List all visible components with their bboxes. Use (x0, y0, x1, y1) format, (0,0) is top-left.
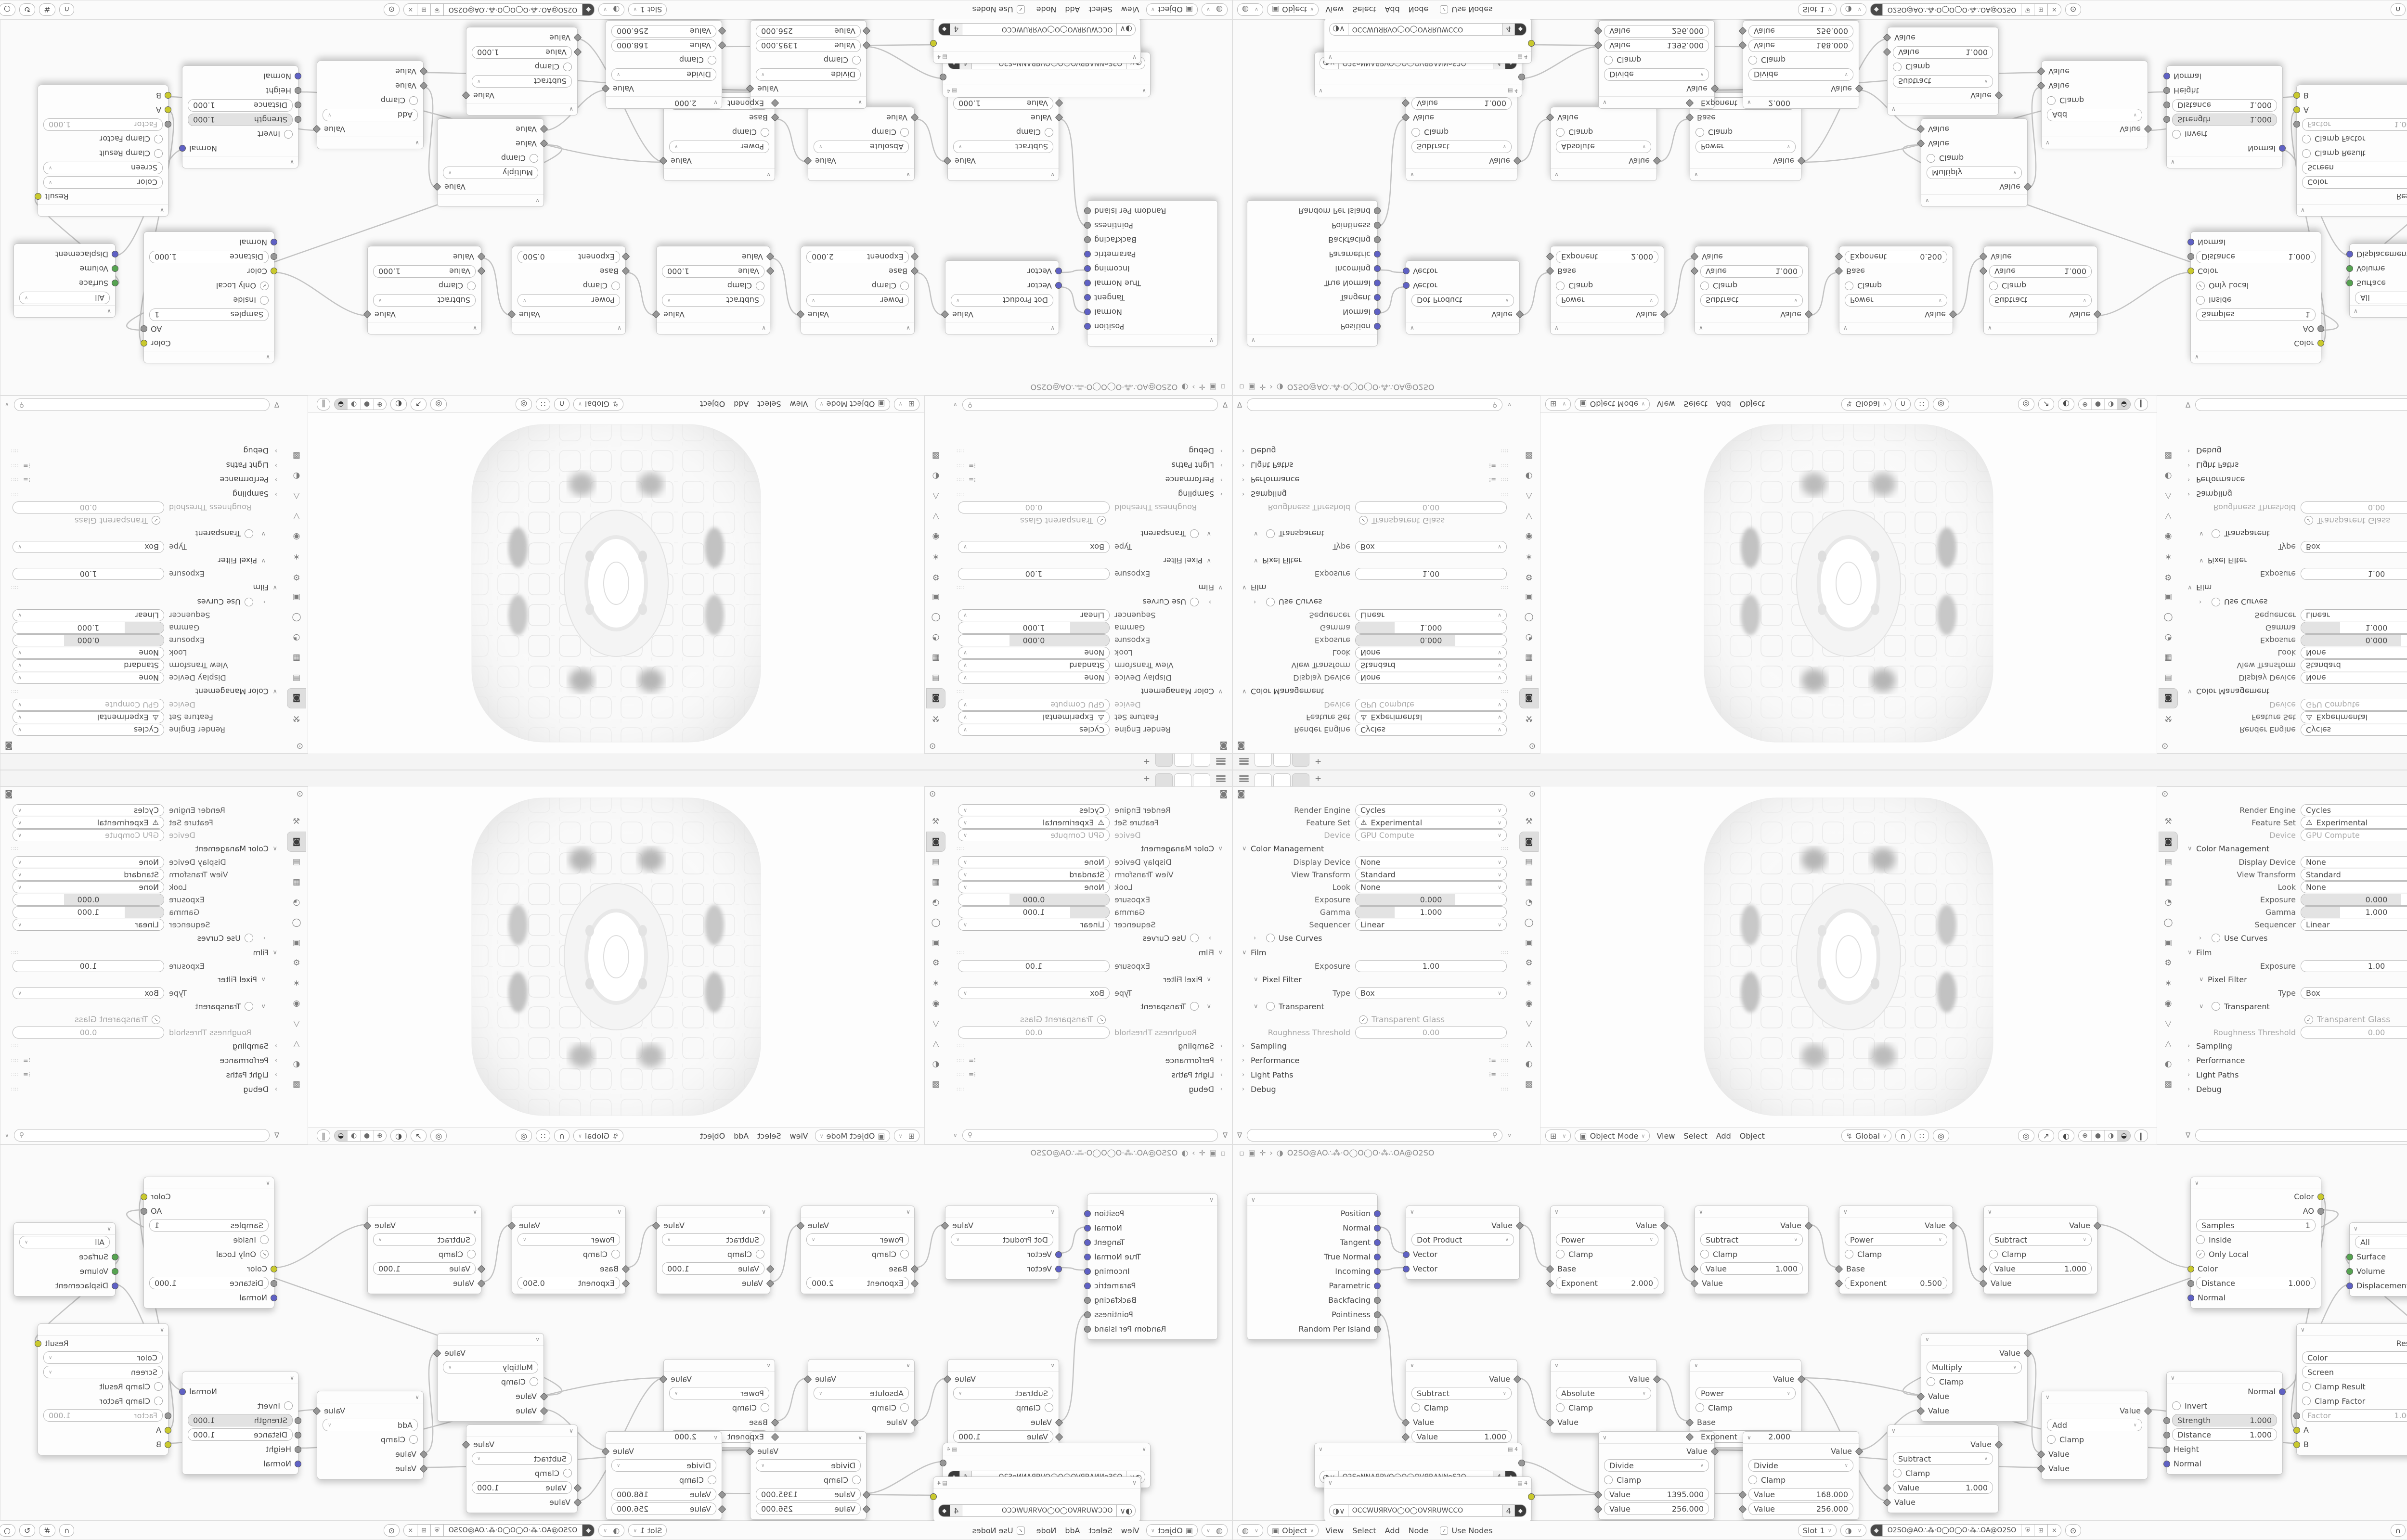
snap-icon-2[interactable]: ◎ (1933, 1129, 1949, 1142)
node-enum[interactable]: Divide∨ (756, 1459, 861, 1472)
mode-dropdown[interactable]: ▣Object Mode∨ (1575, 398, 1650, 411)
dropdown-display-device[interactable]: None∨ (13, 856, 164, 868)
shader-node-geometry[interactable]: ∨PositionNormalTangentTrue NormalIncomin… (1247, 200, 1378, 346)
value-exposure[interactable]: 0.000 (958, 635, 1110, 647)
dropdown-type[interactable]: Box∨ (958, 987, 1110, 999)
value-gamma[interactable]: 1.000 (13, 622, 164, 634)
shader-node-bump[interactable]: ∨NormalInvertStrength1.000Distance1.000H… (182, 1372, 298, 1475)
unlink-button[interactable]: × (2048, 3, 2061, 16)
socket[interactable] (2346, 1268, 2353, 1275)
collapse-chevron-icon[interactable]: ∨ (1603, 99, 1607, 106)
node-enum[interactable]: Screen∨ (43, 1366, 163, 1378)
section-header-sampling[interactable]: ›Sampling∷∷ (5, 1039, 282, 1053)
node-header[interactable]: ∨ (1087, 334, 1217, 346)
collapse-chevron-icon[interactable]: ∨ (1699, 1208, 1703, 1215)
collapse-chevron-icon[interactable]: ∨ (1251, 337, 1255, 344)
node-header[interactable]: ∨ (1984, 1206, 2097, 1218)
node-checkbox[interactable]: Clamp Factor (100, 1397, 168, 1406)
shader-node-math-subtract[interactable]: ∨ValueSubtract∨ClampValue1.000Value (466, 27, 578, 115)
value-exposure[interactable]: 0.000 (2301, 894, 2407, 906)
dropdown-sequencer[interactable]: Linear∨ (1355, 610, 1507, 622)
socket[interactable] (2317, 325, 2324, 332)
node-checkbox[interactable]: Clamp (1551, 128, 1593, 137)
socket[interactable] (295, 73, 301, 79)
node-field[interactable]: Exponent0.500 (518, 251, 620, 263)
node-header[interactable]: ∨ (945, 1206, 1059, 1218)
section-header-transparent[interactable]: ∨Transparent (1237, 999, 1514, 1014)
collapse-chevron-icon[interactable]: ∨ (858, 1434, 862, 1441)
node-header[interactable]: ∨ (1406, 1206, 1519, 1218)
node-field[interactable]: Value168.000 (611, 1488, 716, 1501)
tab-texture[interactable]: ▩ (2159, 1074, 2178, 1094)
dropdown-type[interactable]: Box∨ (2301, 987, 2407, 999)
node-field[interactable]: Value256.000 (611, 1502, 716, 1515)
section-checkbox[interactable] (1266, 529, 1275, 538)
socket[interactable] (1374, 1297, 1381, 1304)
editor-type-button[interactable]: ⊞∨ (894, 1129, 919, 1142)
editor-icon-2[interactable]: ↻ (19, 3, 35, 16)
section-header-light-paths[interactable]: ›Light Paths⁝≡∷∷ (5, 1067, 282, 1082)
shader-node-math-absolute[interactable]: ∨ValueAbsolute∨ClampValue (1550, 1359, 1657, 1433)
shader-node-ambient-occlusion[interactable]: ∨ColorAOSamples1Inside✓Only LocalColorDi… (2190, 1177, 2321, 1309)
menu-add[interactable]: Add (1716, 400, 1731, 409)
collapse-chevron-icon[interactable]: ∨ (1554, 1362, 1559, 1369)
collapse-chevron-icon[interactable]: ∨ (617, 1208, 621, 1215)
section-header-transparent[interactable]: ∨Transparent (2183, 999, 2407, 1014)
node-field[interactable]: Strength1.000 (2172, 1414, 2277, 1426)
node-checkbox[interactable]: Clamp (535, 1469, 577, 1478)
node-header[interactable]: ∨ (2350, 1223, 2407, 1235)
section-header-sampling[interactable]: ›Sampling∷∷ (950, 487, 1228, 501)
node-header[interactable]: ∨ (1247, 334, 1377, 346)
node-enum[interactable]: Absolute∨ (1556, 141, 1651, 153)
preset-menu-icon[interactable]: ⁝≡ (1489, 1071, 1496, 1078)
tab-object[interactable]: ▣ (2159, 587, 2178, 607)
node-header[interactable]: ∨ (1921, 194, 2027, 206)
shader-node-math-power[interactable]: ∨ValuePower∨ClampBaseExponent0.500 (1839, 1206, 1953, 1294)
overlay-icon-0[interactable]: ◎ (430, 398, 447, 411)
shader-node-bump[interactable]: ∨NormalInvertStrength1.000Distance1.000H… (2166, 65, 2283, 168)
workspace-tab[interactable] (1273, 773, 1291, 786)
section-header-sampling[interactable]: ›Sampling∷∷ (1237, 1039, 1514, 1053)
node-enum[interactable]: Subtract∨ (1700, 1233, 1803, 1246)
collapse-chevron-icon[interactable]: ∨ (1209, 1196, 1214, 1203)
tab-output[interactable]: ▤ (926, 852, 945, 872)
tab-physics[interactable]: ◉ (287, 526, 306, 547)
socket[interactable] (112, 251, 118, 257)
socket[interactable] (1084, 1268, 1091, 1275)
node-header[interactable]: ∨ (2191, 351, 2321, 363)
shading-solid-icon[interactable]: ● (360, 399, 373, 410)
socket[interactable] (1084, 265, 1091, 272)
socket[interactable] (2163, 102, 2170, 108)
collapse-chevron-icon[interactable]: ∨ (1319, 1446, 1323, 1452)
node-checkbox[interactable]: Clamp (824, 56, 866, 65)
shader-node-material-output[interactable]: ∨All∨SurfaceVolumeDisplacement (2349, 244, 2407, 318)
collapse-chevron-icon[interactable]: ∨ (1699, 325, 1703, 332)
collapse-chevron-icon[interactable]: ∨ (1410, 325, 1414, 332)
socket[interactable] (1374, 1268, 1381, 1275)
dropdown-render-engine[interactable]: Cycles∨ (13, 724, 164, 736)
dropdown-device[interactable]: GPU Compute∨ (2301, 829, 2407, 841)
mode-dropdown[interactable]: ▣Object Mode∨ (815, 1129, 890, 1142)
tab-modifiers[interactable]: ⚙ (1519, 567, 1539, 587)
tab-constraints[interactable]: ▽ (926, 1014, 945, 1034)
node-field[interactable]: Exponent2.000 (669, 1430, 769, 1443)
node-header[interactable]: ∨ (808, 168, 914, 180)
use-curves-row[interactable]: ›Use Curves (5, 931, 282, 945)
node-header[interactable]: ∨ (38, 1324, 168, 1336)
dropdown-render-engine[interactable]: Cycles∨ (2301, 804, 2407, 816)
collapse-chevron-icon[interactable]: ∨ (1554, 171, 1559, 178)
node-checkbox[interactable]: Clamp (1406, 1403, 1449, 1412)
shader-node-math-divide[interactable]: ∨ValueDivide∨ClampValue1395.000Value256.… (1598, 20, 1715, 109)
node-enum[interactable]: Divide∨ (611, 1459, 716, 1472)
use-curves-row[interactable]: ›Use Curves (2183, 595, 2407, 609)
tab-object[interactable]: ▣ (2159, 933, 2178, 953)
shader-node-bump[interactable]: ∨NormalInvertStrength1.000Distance1.000H… (182, 65, 298, 168)
use-curves-row[interactable]: ›Use Curves (2183, 931, 2407, 945)
tab-scene[interactable]: ◔ (287, 628, 306, 648)
preset-menu-icon[interactable]: ⁝≡ (969, 462, 976, 469)
tab-render[interactable]: ◙ (2159, 688, 2178, 708)
collapse-chevron-icon[interactable]: ∨ (1554, 1208, 1559, 1215)
socket[interactable] (1374, 222, 1381, 229)
snap-icon-2[interactable]: ◎ (516, 1129, 532, 1142)
node-field[interactable]: Factor1.000 (43, 118, 163, 131)
socket[interactable] (1374, 251, 1381, 257)
shader-node-math-subtract[interactable]: ∨ValueSubtract∨ClampValue1.000Value (1887, 27, 1999, 115)
workspace-tab[interactable] (1292, 773, 1309, 786)
shader-node-math-power[interactable]: ∨ValuePower∨ClampBaseExponent2.000 (801, 246, 915, 334)
shader-node-math-multiply[interactable]: ∨ValueMultiply∨ClampValueValue (437, 118, 544, 207)
shading-rendered-icon[interactable]: ◒ (335, 399, 347, 410)
collapse-chevron-icon[interactable]: ∨ (266, 354, 270, 360)
tab-object-data[interactable]: △ (287, 486, 306, 506)
section-header-debug[interactable]: ›Debug∷∷ (1237, 1082, 1514, 1096)
collapse-chevron-icon[interactable]: ∨ (762, 1208, 766, 1215)
shading-material-icon[interactable]: ◑ (347, 1130, 360, 1141)
collapse-chevron-icon[interactable]: ∨ (473, 325, 477, 332)
tab-physics[interactable]: ◉ (1519, 993, 1539, 1014)
app-menu-icon[interactable] (1216, 775, 1226, 782)
node-header[interactable]: ∨ (466, 103, 577, 115)
collapse-chevron-icon[interactable]: ∨ (1050, 171, 1055, 178)
dropdown-type[interactable]: Box∨ (13, 987, 164, 999)
preset-menu-icon[interactable]: ⁝≡ (23, 1071, 30, 1078)
shader-node-math-power[interactable]: ∨ValuePower∨ClampBaseExponent2.000 (1690, 92, 1801, 181)
section-header-film[interactable]: ∨Film∷∷ (2183, 945, 2407, 960)
socket[interactable] (165, 1427, 171, 1434)
transform-orientation-dropdown[interactable]: ↯Global∨ (573, 1129, 624, 1142)
node-header[interactable]: ∨ (2042, 137, 2148, 149)
socket[interactable] (1374, 1239, 1381, 1246)
node-checkbox[interactable]: Clamp (439, 1250, 481, 1259)
node-field[interactable]: Value256.000 (756, 25, 861, 38)
menu-add[interactable]: Add (1716, 1131, 1731, 1141)
menu-add[interactable]: Add (1065, 5, 1080, 14)
tab-object-data[interactable]: △ (1519, 486, 1539, 506)
collapse-chevron-icon[interactable]: ∨ (1988, 325, 1992, 332)
socket[interactable] (35, 193, 41, 200)
pause-render-button[interactable]: ∥ (2135, 398, 2148, 411)
node-field[interactable]: Factor1.000 (2302, 118, 2407, 131)
tab-texture[interactable]: ▩ (287, 446, 306, 466)
snap-icon-0[interactable]: ∩ (554, 1129, 569, 1142)
editor-icon-0[interactable]: ∩ (2391, 1524, 2406, 1537)
tab-tool[interactable]: ⚒ (287, 811, 306, 832)
dropdown-display-device[interactable]: None∨ (2301, 672, 2407, 684)
node-checkbox[interactable]: Clamp (1743, 1476, 1786, 1485)
tab-object[interactable]: ▣ (926, 933, 945, 953)
node-enum[interactable]: Screen∨ (2302, 1366, 2407, 1378)
socket[interactable] (1055, 1266, 1062, 1272)
node-checkbox[interactable]: ✓Only Local (216, 282, 274, 291)
socket[interactable] (141, 340, 147, 346)
collapse-chevron-icon[interactable]: ∨ (2195, 354, 2199, 360)
dropdown-sequencer[interactable]: Linear∨ (958, 610, 1110, 622)
tab-tool[interactable]: ⚒ (287, 708, 306, 729)
socket[interactable] (1055, 268, 1062, 274)
node-enum[interactable]: Power∨ (669, 141, 769, 153)
collapse-chevron-icon[interactable]: ∨ (2301, 1326, 2305, 1333)
section-header-film[interactable]: ∨Film∷∷ (1237, 580, 1514, 595)
socket[interactable] (2163, 73, 2170, 79)
menu-view[interactable]: View (1325, 1526, 1344, 1535)
node-header[interactable]: ∨ (801, 1206, 914, 1218)
node-field[interactable]: Distance1.000 (2196, 251, 2316, 263)
socket[interactable] (179, 1388, 186, 1395)
shading-rendered-icon[interactable]: ◒ (335, 1130, 347, 1141)
tab-view-layer[interactable]: ▦ (2159, 872, 2178, 892)
mode-dropdown[interactable]: ▣Object Mode∨ (1575, 1129, 1650, 1142)
tab-particles[interactable]: ∗ (1519, 547, 1539, 567)
node-header[interactable]: ∨ (657, 1206, 770, 1218)
socket[interactable] (2163, 1446, 2170, 1453)
checkbox[interactable]: ✓ (2304, 1015, 2313, 1024)
editor-icon-1[interactable]: # (39, 3, 55, 16)
shader-node-math-power[interactable]: ∨ValuePower∨ClampBaseExponent2.000 (1690, 1359, 1801, 1448)
preset-menu-icon[interactable]: ⁝≡ (969, 1057, 976, 1064)
shader-node-math-subtract[interactable]: ∨ValueSubtract∨ClampValue1.000Value (1983, 246, 2097, 334)
shader-node-math-power[interactable]: ∨ValuePower∨ClampBaseExponent2.000 (663, 92, 775, 181)
node-enum[interactable]: Multiply∨ (443, 1361, 538, 1373)
socket[interactable] (141, 1208, 147, 1215)
value-gamma[interactable]: 1.000 (2301, 622, 2407, 634)
shader-context-dropdown[interactable]: ▣Object∨ (1146, 1524, 1198, 1537)
dropdown-type[interactable]: Box∨ (958, 541, 1110, 553)
tab-physics[interactable]: ◉ (2159, 526, 2178, 547)
editor-type-button[interactable]: ⊞∨ (1545, 1129, 1571, 1142)
node-checkbox[interactable]: Clamp (2042, 1435, 2084, 1444)
node-field[interactable]: Distance1.000 (188, 99, 293, 112)
dropdown-view-transform[interactable]: Standard∨ (13, 660, 164, 672)
section-checkbox[interactable] (2212, 1002, 2220, 1011)
value-roughness-threshold[interactable]: 0.00 (958, 1027, 1110, 1039)
browse-material-button[interactable]: ◑∨ (1840, 3, 1866, 16)
checkbox[interactable]: ✓ (152, 1015, 160, 1024)
tab-material[interactable]: ◐ (926, 466, 945, 486)
tab-particles[interactable]: ∗ (2159, 973, 2178, 993)
shader-node-math-power[interactable]: ∨ValuePower∨ClampBaseExponent0.500 (1839, 246, 1953, 334)
chevron-down-icon[interactable]: ∨ (5, 1132, 9, 1139)
material-name-field[interactable]: O2SO@AO∴⁂·O◯O◯O·⁂∴OA@O2SO (1883, 1524, 2021, 1537)
section-header-film[interactable]: ∨Film∷∷ (950, 945, 1228, 960)
collapse-chevron-icon[interactable]: ∨ (2045, 140, 2050, 146)
node-header[interactable]: ∨ (1839, 322, 1953, 334)
dropdown-view-transform[interactable]: Standard∨ (1355, 660, 1507, 672)
tab-view-layer[interactable]: ▦ (926, 872, 945, 892)
section-header-sampling[interactable]: ›Sampling∷∷ (5, 487, 282, 501)
node-checkbox[interactable]: Clamp (381, 96, 423, 105)
section-header-transparent[interactable]: ∨Transparent (2183, 526, 2407, 541)
tab-world[interactable]: ◯ (1519, 912, 1539, 933)
node-field[interactable]: Factor1.000 (43, 1409, 163, 1422)
node-enum[interactable]: Screen∨ (2302, 162, 2407, 174)
menu-add[interactable]: Add (734, 1131, 749, 1141)
workspace-tab[interactable] (1255, 773, 1272, 786)
node-field[interactable]: Value1.000 (373, 265, 476, 278)
socket[interactable] (35, 1340, 41, 1347)
collapse-chevron-icon[interactable]: ∨ (1843, 1208, 1848, 1215)
section-header-debug[interactable]: ›Debug∷∷ (950, 1082, 1228, 1096)
mode-dropdown[interactable]: ▣Object Mode∨ (815, 398, 890, 411)
node-field[interactable]: Value168.000 (1748, 1488, 1853, 1501)
shader-node-math-power[interactable]: ∨ValuePower∨ClampBaseExponent2.000 (1550, 1206, 1664, 1294)
dropdown-sequencer[interactable]: Linear∨ (13, 610, 164, 622)
tab-constraints[interactable]: ▽ (287, 1014, 306, 1034)
tab-world[interactable]: ◯ (287, 607, 306, 628)
tab-material[interactable]: ◐ (1519, 466, 1539, 486)
node-enum[interactable]: Divide∨ (611, 68, 716, 81)
new-material-button[interactable]: ⊞ (417, 3, 430, 16)
shader-node-mix-color[interactable]: ∨ResultColor∨Screen∨Clamp ResultClamp Fa… (38, 85, 168, 217)
socket[interactable] (179, 145, 186, 152)
app-menu-icon[interactable] (1239, 775, 1249, 782)
search-input[interactable]: ⚲ (962, 1129, 1218, 1142)
node-enum[interactable]: Add∨ (323, 109, 418, 121)
node-field[interactable]: Exponent0.500 (1845, 1277, 1947, 1289)
workspace-tab[interactable] (1174, 773, 1191, 786)
filter-icon[interactable]: ∇ (2186, 400, 2190, 409)
shading-material-icon[interactable]: ◑ (2105, 1130, 2118, 1141)
value-gamma[interactable]: 1.000 (1355, 622, 1507, 634)
node-checkbox[interactable]: Clamp Result (2297, 149, 2366, 158)
workspace-tab[interactable] (1155, 773, 1173, 786)
node-header[interactable]: ∨ (948, 168, 1059, 180)
dropdown-look[interactable]: None∨ (2301, 881, 2407, 893)
pause-render-button[interactable]: ∥ (317, 1129, 330, 1142)
socket[interactable] (2293, 106, 2300, 113)
node-checkbox[interactable]: ✓Only Local (216, 1250, 274, 1259)
node-header[interactable]: ∨ (368, 322, 481, 334)
tab-physics[interactable]: ◉ (926, 526, 945, 547)
collapse-chevron-icon[interactable]: ∨ (160, 1326, 164, 1333)
socket[interactable] (2293, 92, 2300, 99)
tab-particles[interactable]: ∗ (287, 973, 306, 993)
tab-render[interactable]: ◙ (287, 832, 306, 852)
use-curves-row[interactable]: ›Use Curves (950, 595, 1228, 609)
value-exposure[interactable]: 0.000 (13, 894, 164, 906)
tab-world[interactable]: ◯ (287, 912, 306, 933)
dropdown-display-device[interactable]: None∨ (1355, 856, 1507, 868)
node-field[interactable]: Samples1 (149, 1219, 269, 1232)
slot-dropdown[interactable]: Slot 1∨ (1798, 1524, 1837, 1537)
dropdown-type[interactable]: Box∨ (2301, 541, 2407, 553)
collapse-chevron-icon[interactable]: ∨ (1925, 1336, 1929, 1343)
node-enum[interactable]: Color∨ (2302, 176, 2407, 189)
snap-icon-1[interactable]: ∷ (1915, 398, 1929, 411)
value-exposure[interactable]: 1.00 (958, 960, 1110, 972)
collapse-chevron-icon[interactable]: ∨ (1988, 1208, 1992, 1215)
value-gamma[interactable]: 1.000 (13, 906, 164, 918)
checkbox[interactable] (2212, 934, 2220, 942)
collapse-chevron-icon[interactable]: ∨ (290, 159, 294, 166)
section-header-light-paths[interactable]: ›Light Paths⁝≡∷∷ (2183, 458, 2407, 473)
shading-solid-icon[interactable]: ● (360, 1130, 373, 1141)
tab-texture[interactable]: ▩ (287, 1074, 306, 1094)
node-enum[interactable]: Subtract∨ (472, 75, 572, 88)
datablock-name[interactable]: OCCWUЯRVO◯O◯OVЯRUWCCO (1348, 1504, 1503, 1517)
tab-render[interactable]: ◙ (2159, 832, 2178, 852)
node-header[interactable]: ∨ (664, 1360, 775, 1372)
menu-select[interactable]: Select (1088, 1526, 1112, 1535)
shader-node-geometry[interactable]: ∨PositionNormalTangentTrue NormalIncomin… (1087, 200, 1218, 346)
socket[interactable] (1374, 308, 1381, 315)
dropdown-device[interactable]: GPU Compute∨ (1355, 699, 1507, 711)
section-header-film[interactable]: ∨Film∷∷ (5, 945, 282, 960)
section-header-pixel-filter[interactable]: ∨Pixel Filter (1237, 553, 1514, 568)
node-enum[interactable]: Divide∨ (1748, 68, 1853, 81)
preset-menu-icon[interactable]: ⁝≡ (1489, 476, 1496, 484)
dropdown-render-engine[interactable]: Cycles∨ (958, 804, 1110, 816)
section-header-performance[interactable]: ›Performance⁝≡∷∷ (950, 473, 1228, 487)
workspace-tab[interactable] (1174, 754, 1191, 767)
tab-world[interactable]: ◯ (926, 912, 945, 933)
socket[interactable] (2163, 1417, 2170, 1424)
socket[interactable] (1084, 1239, 1091, 1246)
dropdown-look[interactable]: None∨ (1355, 647, 1507, 659)
section-header-debug[interactable]: ›Debug∷∷ (5, 1082, 282, 1096)
tab-object-data[interactable]: △ (2159, 486, 2178, 506)
socket[interactable] (295, 1417, 301, 1424)
tab-world[interactable]: ◯ (926, 607, 945, 628)
socket[interactable] (112, 280, 118, 286)
browse-datablock-button[interactable]: ◑∨ (1116, 23, 1136, 36)
node-field[interactable]: Value1395.000 (756, 1488, 861, 1501)
collapse-chevron-icon[interactable]: ∨ (1891, 1427, 1896, 1434)
shader-node-math-subtract[interactable]: ∨ValueSubtract∨ClampValue1.000Value (367, 246, 481, 334)
section-header-light-paths[interactable]: ›Light Paths⁝≡∷∷ (5, 458, 282, 473)
node-field[interactable]: Value1.000 (472, 1481, 572, 1494)
snap-icon-1[interactable]: ∷ (1915, 1129, 1929, 1142)
shader-node-math-subtract[interactable]: ∨ValueSubtract∨ClampValue1.000Value (1695, 1206, 1809, 1294)
use-nodes-checkbox[interactable]: ✓ (1017, 1527, 1025, 1535)
editor-type-button[interactable]: ◍∨ (1237, 3, 1263, 16)
node-field[interactable]: Exponent2.000 (1695, 97, 1796, 110)
socket[interactable] (1528, 1493, 1535, 1500)
node-field[interactable]: Value1.000 (662, 265, 764, 278)
shader-node-material-output[interactable]: ∨All∨SurfaceVolumeDisplacement (2349, 1222, 2407, 1296)
tab-tool[interactable]: ⚒ (926, 811, 945, 832)
node-header[interactable]: ∨ (2191, 1177, 2321, 1189)
node-field[interactable]: Exponent2.000 (1556, 251, 1658, 263)
shader-node-math-subtract[interactable]: ∨ValueSubtract∨ClampValue1.000Value (1887, 1424, 1999, 1513)
node-checkbox[interactable]: Clamp (1984, 1250, 2026, 1259)
chevron-down-icon[interactable]: ∨ (1507, 401, 1512, 408)
socket[interactable] (112, 265, 118, 272)
node-enum[interactable]: Power∨ (669, 1387, 769, 1399)
